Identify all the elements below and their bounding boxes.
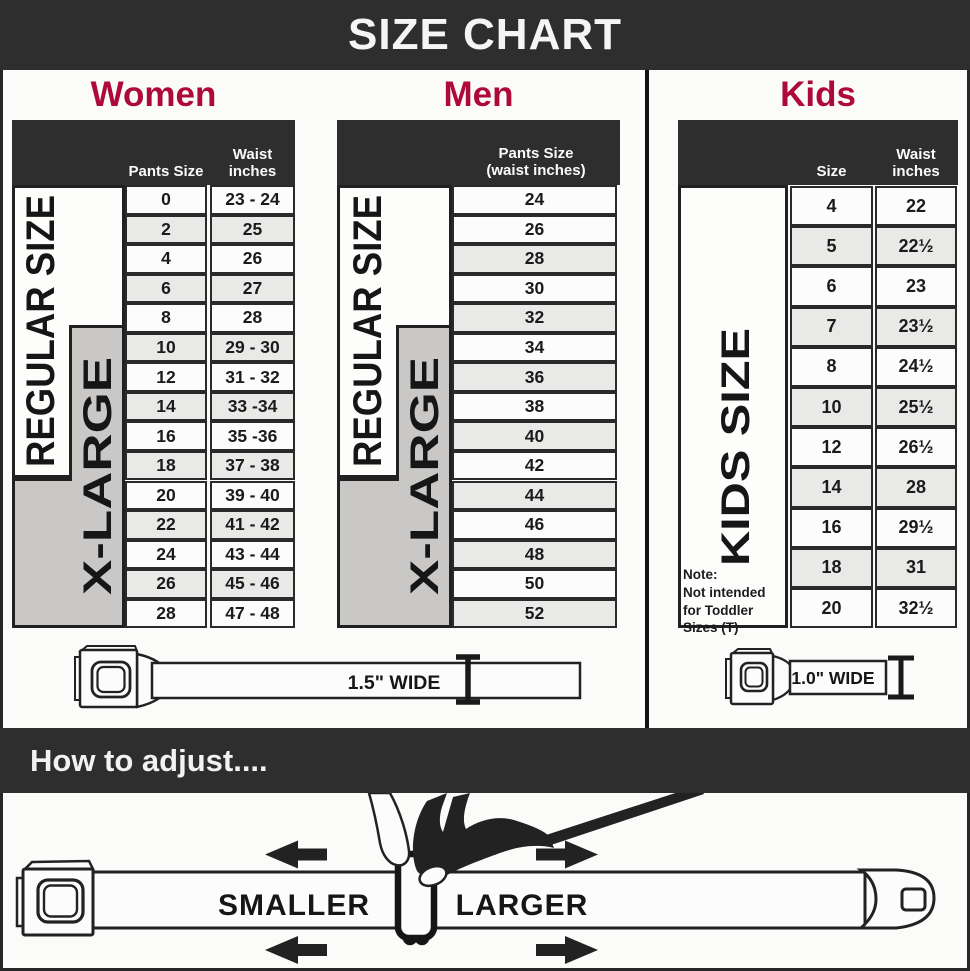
smaller-label: SMALLER xyxy=(218,889,370,922)
table-cell: 29 - 30 xyxy=(210,333,295,363)
table-cell: 48 xyxy=(452,540,617,570)
women-size-bands: REGULAR SIZE X-LARGE xyxy=(12,185,125,628)
size-chart-page: SIZE CHART Women Men Kids Pants Size Wai… xyxy=(0,0,970,971)
table-cell: 10 xyxy=(125,333,207,363)
table-cell: 18 xyxy=(790,548,873,588)
section-heading-men: Men xyxy=(337,71,620,118)
larger-label: LARGER xyxy=(456,889,589,922)
table-cell: 14 xyxy=(790,467,873,507)
table-cell: 4 xyxy=(790,186,873,226)
thumb xyxy=(369,793,409,865)
table-cell: 37 - 38 xyxy=(210,451,295,481)
table-cell: 23½ xyxy=(875,307,957,347)
men-xlarge-label: X-LARGE xyxy=(403,357,447,595)
table-cell: 20 xyxy=(125,481,207,511)
table-cell: 43 - 44 xyxy=(210,540,295,570)
table-cell: 27 xyxy=(210,274,295,304)
table-cell: 16 xyxy=(125,421,207,451)
table-cell: 45 - 46 xyxy=(210,569,295,599)
kids-note-body: Not intended for Toddler Sizes (T) xyxy=(683,584,786,637)
men-table-header: Pants Size (waist inches) xyxy=(337,120,620,185)
kids-belt-width-label: 1.0" WIDE xyxy=(791,668,874,688)
table-cell: 28 xyxy=(210,303,295,333)
adult-belt-diagram: 1.5" WIDE xyxy=(12,645,582,723)
table-cell: 47 - 48 xyxy=(210,599,295,629)
women-regular-label: REGULAR SIZE xyxy=(19,195,63,467)
men-column-header-line2: (waist inches) xyxy=(452,162,620,179)
table-cell: 52 xyxy=(452,599,617,629)
kids-size-label: KIDS SIZE xyxy=(714,328,758,566)
table-cell: 6 xyxy=(125,274,207,304)
table-cell: 24 xyxy=(452,185,617,215)
kids-belt-diagram: 1.0" WIDE xyxy=(692,648,932,712)
belt-tip-slot xyxy=(902,889,925,910)
table-cell: 41 - 42 xyxy=(210,510,295,540)
table-cell: 16 xyxy=(790,508,873,548)
kids-note-title: Note: xyxy=(683,566,786,584)
table-cell: 8 xyxy=(790,347,873,387)
table-cell: 44 xyxy=(452,481,617,511)
table-cell: 39 - 40 xyxy=(210,481,295,511)
table-cell: 26½ xyxy=(875,427,957,467)
table-cell: 31 xyxy=(875,548,957,588)
table-cell: 40 xyxy=(452,421,617,451)
table-cell: 5 xyxy=(790,226,873,266)
table-cell: 14 xyxy=(125,392,207,422)
table-cell: 20 xyxy=(790,588,873,628)
table-cell: 28 xyxy=(125,599,207,629)
table-cell: 50 xyxy=(452,569,617,599)
table-cell: 0 xyxy=(125,185,207,215)
table-cell: 28 xyxy=(875,467,957,507)
kids-waist-column-header: Waist inches xyxy=(875,146,957,181)
women-size-column-header: Pants Size xyxy=(125,163,207,180)
table-cell: 22 xyxy=(125,510,207,540)
table-cell: 28 xyxy=(452,244,617,274)
section-divider xyxy=(645,70,649,728)
how-to-adjust-bar: How to adjust.... xyxy=(0,728,970,793)
title-bar: SIZE CHART xyxy=(0,0,970,70)
table-cell: 6 xyxy=(790,266,873,306)
section-heading-women: Women xyxy=(12,71,295,118)
left-arrow-icon xyxy=(265,936,327,964)
pulled-strap xyxy=(546,793,704,845)
table-cell: 23 xyxy=(875,266,957,306)
table-cell: 29½ xyxy=(875,508,957,548)
table-cell: 32 xyxy=(452,303,617,333)
seatbelt-buckle-icon xyxy=(80,650,137,707)
men-regular-label: REGULAR SIZE xyxy=(346,195,390,467)
men-size-bands: REGULAR SIZE X-LARGE xyxy=(337,185,452,628)
left-arrow-icon xyxy=(265,841,327,869)
kids-note: Note: Not intended for Toddler Sizes (T) xyxy=(683,566,786,637)
table-cell: 24 xyxy=(125,540,207,570)
table-cell: 34 xyxy=(452,333,617,363)
page-title: SIZE CHART xyxy=(348,10,622,60)
table-cell: 26 xyxy=(452,215,617,245)
how-to-adjust-heading: How to adjust.... xyxy=(0,743,268,779)
women-waist-column-header: Waist inches xyxy=(210,146,295,181)
table-cell: 46 xyxy=(452,510,617,540)
table-cell: 36 xyxy=(452,362,617,392)
table-cell: 26 xyxy=(125,569,207,599)
table-cell: 26 xyxy=(210,244,295,274)
table-cell: 22½ xyxy=(875,226,957,266)
right-arrow-icon xyxy=(536,936,598,964)
table-cell: 42 xyxy=(452,451,617,481)
adjust-diagram: SMALLER LARGER xyxy=(3,793,967,965)
men-column-header-line1: Pants Size xyxy=(452,145,620,162)
kids-size-column-header: Size xyxy=(790,163,873,180)
table-cell: 25½ xyxy=(875,387,957,427)
adult-belt-width-label: 1.5" WIDE xyxy=(348,672,441,694)
table-cell: 8 xyxy=(125,303,207,333)
table-cell: 22 xyxy=(875,186,957,226)
table-cell: 4 xyxy=(125,244,207,274)
table-cell: 38 xyxy=(452,392,617,422)
table-cell: 33 -34 xyxy=(210,392,295,422)
table-cell: 32½ xyxy=(875,588,957,628)
table-cell: 7 xyxy=(790,307,873,347)
table-cell: 10 xyxy=(790,387,873,427)
table-cell: 30 xyxy=(452,274,617,304)
kids-table-header: Size Waist inches xyxy=(678,120,958,185)
section-heading-kids: Kids xyxy=(678,71,958,118)
women-xlarge-label: X-LARGE xyxy=(76,357,120,595)
table-cell: 2 xyxy=(125,215,207,245)
table-cell: 12 xyxy=(125,362,207,392)
table-cell: 23 - 24 xyxy=(210,185,295,215)
table-cell: 12 xyxy=(790,427,873,467)
men-column-header: Pants Size (waist inches) xyxy=(452,145,620,180)
table-cell: 18 xyxy=(125,451,207,481)
width-marker-icon xyxy=(888,658,914,697)
women-table-header: Pants Size Waist inches xyxy=(12,120,295,185)
kids-size-band: KIDS SIZE xyxy=(678,185,788,628)
table-cell: 25 xyxy=(210,215,295,245)
table-cell: 24½ xyxy=(875,347,957,387)
table-cell: 31 - 32 xyxy=(210,362,295,392)
table-cell: 35 -36 xyxy=(210,421,295,451)
